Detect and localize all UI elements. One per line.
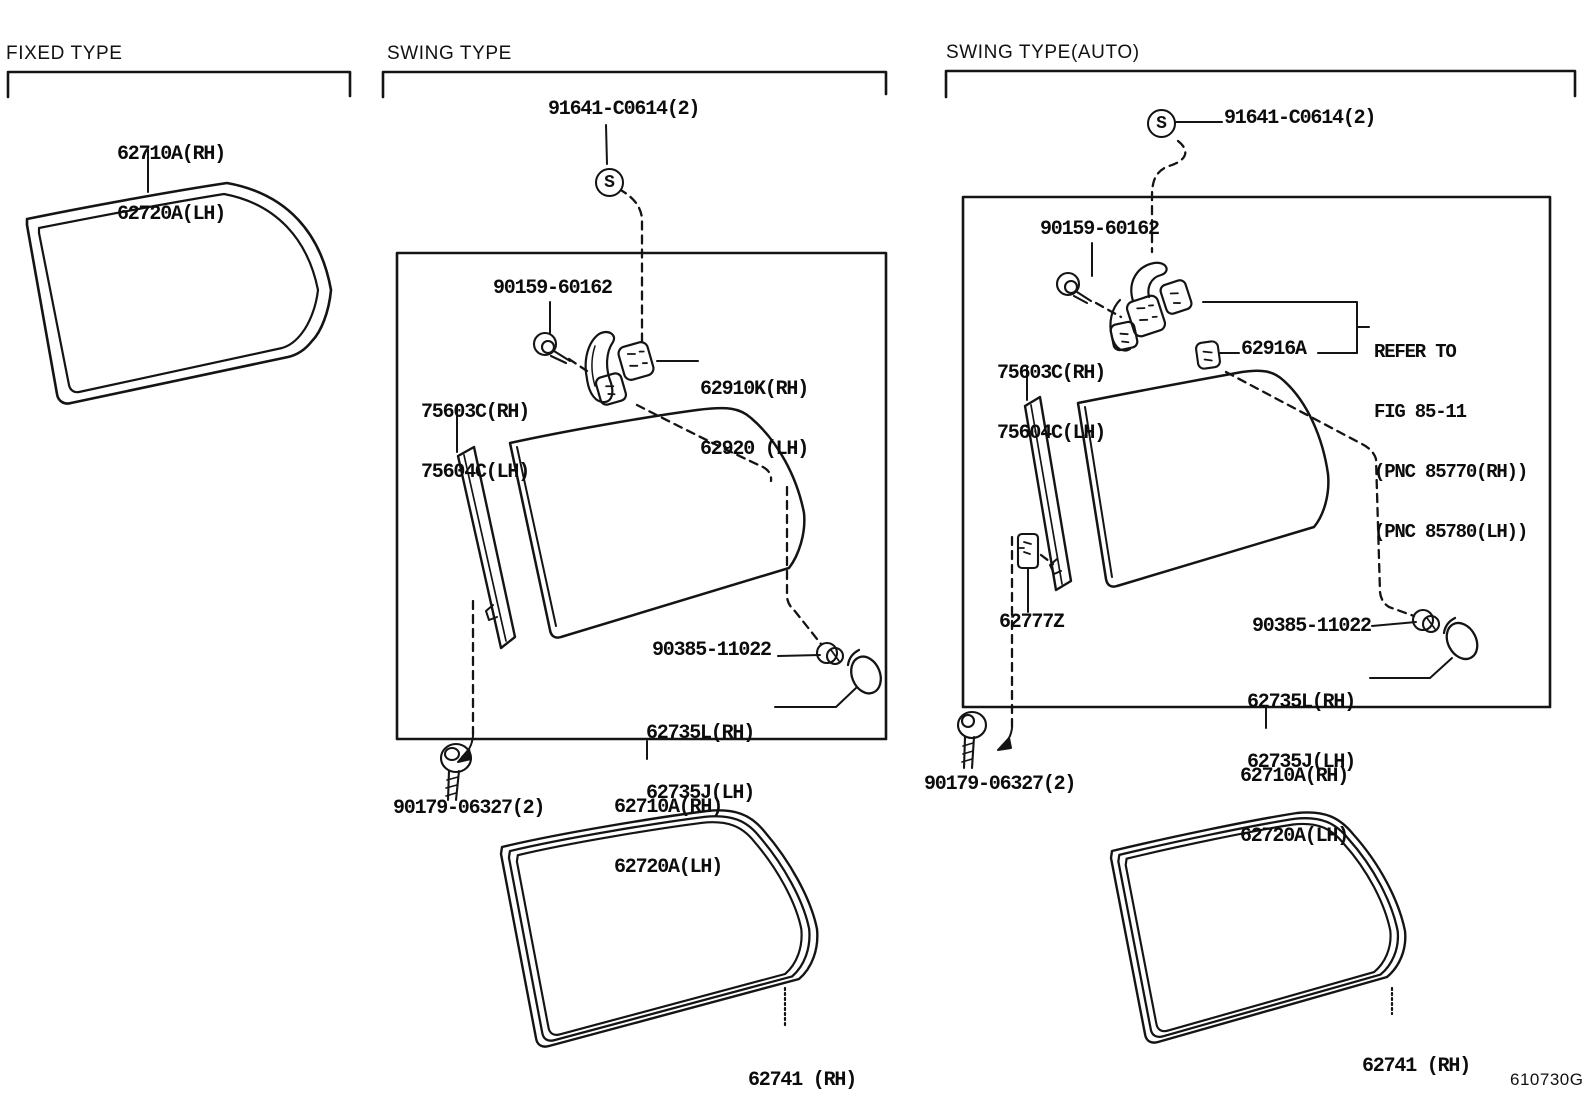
part-label-swing-molding: 75603C(RH) 75604C(LH) [421,363,529,523]
swing-grommet-90385 [817,643,843,664]
part-label-swing-grommet: 90385-11022 [652,641,771,661]
swing-auto-grommet-90385 [1413,610,1439,632]
dashed-lines [473,141,1414,736]
swing-auto-cushion-62735 [1441,618,1484,665]
swing-hinge-drawing [586,332,655,406]
part-label-swing-screwset: 91641-C0614(2) [548,100,699,120]
figure-code: 610730G [1510,1070,1583,1090]
section-bracket-fixed [8,72,350,97]
section-header-swing: SWING TYPE [387,44,512,64]
section-header-swing-auto: SWING TYPE(AUTO) [946,43,1140,63]
part-label-swing-clipscrew: 90159-60162 [493,279,612,299]
part-label-auto-glass: 62710A(RH) 62720A(LH) [1240,727,1348,887]
part-label-fixed-glass: 62710A(RH) 62720A(LH) [117,105,225,265]
part-label-auto-clip: 62916A [1241,340,1306,360]
part-label-auto-bolt: 90179-06327(2) [924,775,1075,795]
part-label-auto-weatherstrip: 62741 (RH) 62742 (LH) [1362,1017,1470,1099]
part-label-swing-glass: 62710A(RH) 62720A(LH) [614,758,722,918]
section-bracket-swing [383,72,886,97]
swing-screw-90159 [534,333,570,363]
swing-s-leader [606,125,607,164]
swing-auto-bolt-90179 [958,712,986,768]
swing-auto-clip-62777 [1018,534,1038,568]
parts-diagram-page: FIXED TYPE 62710A(RH) 62720A(LH) SWING T… [0,0,1592,1099]
section-bracket-swing-auto [946,71,1575,97]
part-label-auto-molding: 75603C(RH) 75604C(LH) [997,324,1105,484]
s-symbol-swing: S [595,168,624,197]
section-header-fixed: FIXED TYPE [6,44,123,64]
swing-auto-glass [1078,371,1328,587]
part-label-swing-bolt: 90179-06327(2) [393,799,544,819]
part-label-swing-hinge: 62910K(RH) 62920 (LH) [700,340,808,500]
part-label-auto-clipscrew: 90159-60162 [1040,220,1159,240]
part-label-swing-weatherstrip: 62741 (RH) 62742 (LH) [748,1031,856,1099]
swing-auto-clip-62916 [1195,341,1220,370]
diagram-artwork [0,0,1592,1099]
dotted-leaders [785,988,1392,1028]
part-label-auto-screwset: 91641-C0614(2) [1224,109,1375,129]
part-label-auto-grommet: 90385-11022 [1252,617,1371,637]
s-symbol-swing-auto: S [1147,109,1176,138]
swing-auto-screw-90159 [1057,273,1091,303]
part-label-auto-clip2: 62777Z [999,613,1064,633]
refer-note: REFER TO FIG 85-11 (PNC 85770(RH)) (PNC … [1374,302,1527,582]
swing-auto-actuator-drawing [1110,263,1193,351]
